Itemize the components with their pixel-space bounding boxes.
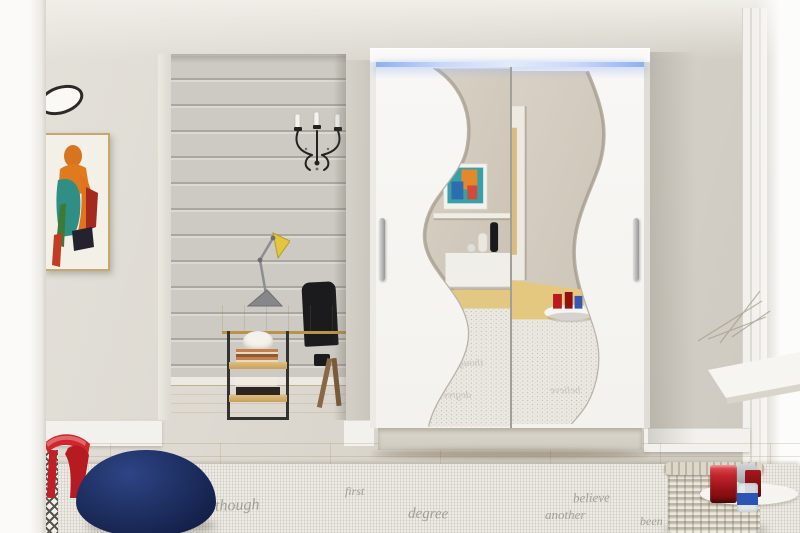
mirror-reflection-cabinet (445, 253, 510, 289)
mirror-rug-word: degree (442, 389, 471, 401)
rug-word: believe (573, 490, 610, 507)
alcove-lintel-shadow (171, 54, 346, 63)
desk-lamp (240, 214, 290, 314)
shelf-frame-right (286, 331, 289, 420)
door-led-glow (512, 67, 644, 79)
painting-figure-art (46, 135, 108, 269)
dark-box (236, 387, 280, 395)
wardrobe-side-right (644, 62, 650, 428)
mirror-rug-word: believe (550, 385, 581, 397)
writing-desk-top (222, 305, 346, 334)
desk-shelf-unit (227, 331, 289, 420)
wardrobe-plinth (378, 428, 642, 450)
wall-shadow-right-of-wardrobe (648, 52, 696, 444)
abstract-painting (44, 133, 110, 271)
cup-label (737, 493, 758, 505)
left-wall-edge (0, 0, 46, 533)
wall-shadow-left-of-wardrobe (330, 60, 372, 420)
mirror-rug-word: though (453, 357, 483, 369)
left-door-mirror: though degree (376, 67, 510, 428)
bowl (243, 331, 273, 351)
mirror-reflection-vase (478, 233, 487, 252)
glass-cup-blue (737, 483, 758, 512)
alcove-jamb-left (158, 54, 171, 420)
mirror-reflection-floor (376, 290, 510, 309)
product-photo-scene: though degree (0, 0, 800, 533)
rug-word: degree (408, 506, 449, 524)
door-led-glow (376, 67, 510, 79)
wardrobe: though degree (370, 48, 650, 460)
wardrobe-left-door: though degree (376, 67, 510, 428)
alcove-doorway (158, 54, 346, 420)
books-stack (236, 349, 278, 362)
rug-word: another (545, 507, 585, 523)
shelf-frame-left (227, 331, 230, 420)
wardrobe-top-panel (370, 48, 650, 63)
mirror-reflection-painting (443, 164, 487, 210)
windowsill (700, 348, 800, 406)
wardrobe-floor-shadow (372, 450, 648, 458)
shelf-board-2 (229, 395, 287, 402)
mirror-reflection-shelf (434, 213, 510, 218)
door-handle-left (379, 218, 385, 281)
wardrobe-right-door: believe (510, 67, 644, 428)
dry-branches (690, 283, 780, 345)
right-door-mirror: believe (512, 67, 644, 428)
rug-word: though (215, 496, 260, 516)
rug-word: been (640, 514, 663, 529)
mirror-reflection-bottle (490, 222, 498, 252)
shelf-frame-bottom (227, 417, 289, 420)
white-books (235, 377, 277, 387)
shelf-board-1 (229, 362, 287, 369)
candle-red-large (710, 465, 737, 503)
door-handle-right (633, 218, 639, 281)
rug-word: first (345, 484, 364, 499)
